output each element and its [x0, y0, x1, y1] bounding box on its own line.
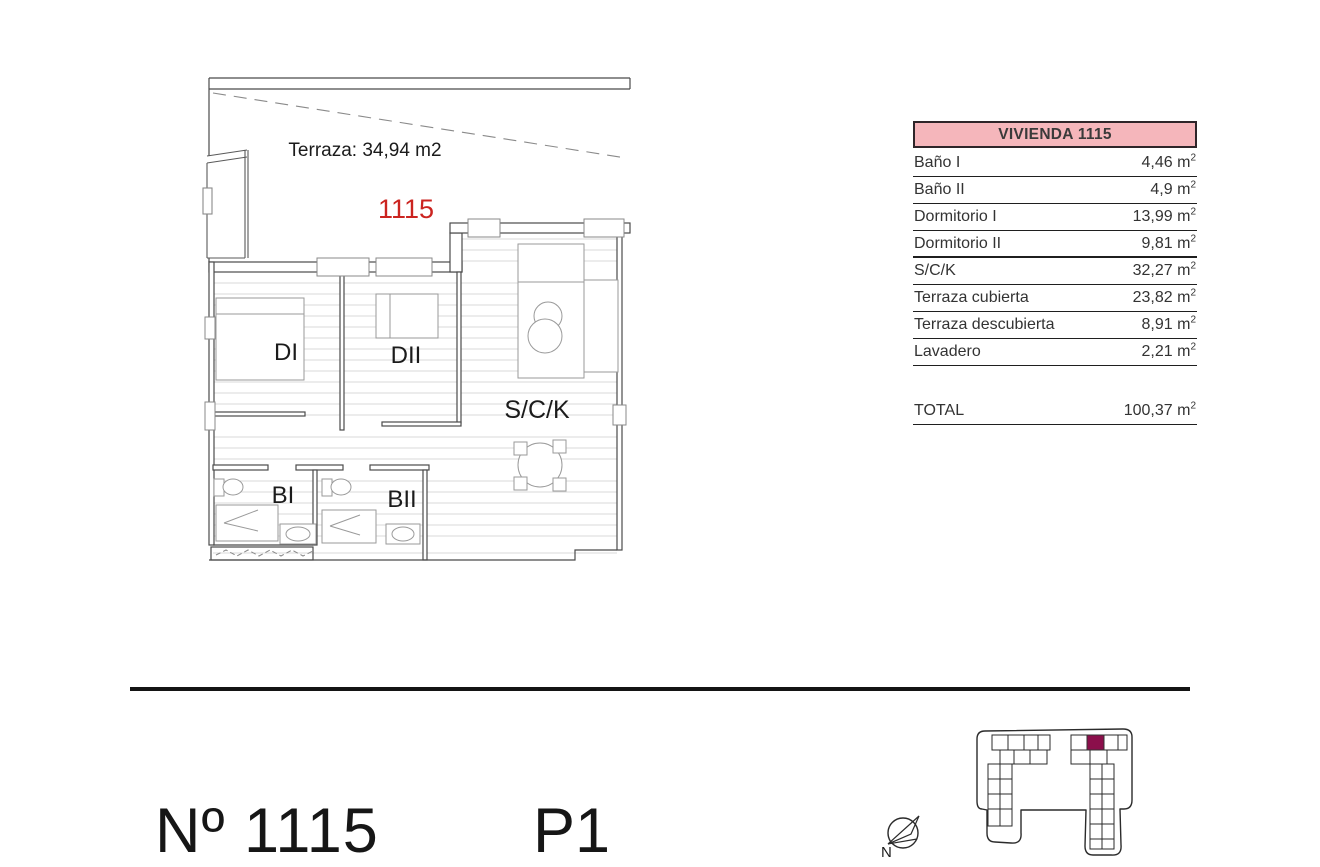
- total-value: 100,37 m2: [1124, 402, 1196, 420]
- table-row: S/C/K 32,27 m2: [913, 258, 1197, 285]
- row-label: Terraza cubierta: [914, 289, 1029, 307]
- row-label: S/C/K: [914, 262, 956, 280]
- row-value: 8,91 m2: [1142, 316, 1196, 334]
- unit-number-label: 1115: [378, 194, 434, 224]
- row-value: 32,27 m2: [1133, 262, 1196, 280]
- floor-plan: Terraza: 34,94 m2 1115 DI DII S/C/K BI B…: [180, 58, 650, 578]
- row-value: 9,81 m2: [1142, 235, 1196, 253]
- area-table: VIVIENDA 1115 Baño I 4,46 m2 Baño II 4,9…: [913, 121, 1197, 425]
- terrace-area-label: Terraza: 34,94 m2: [288, 140, 441, 161]
- row-label: Baño II: [914, 181, 965, 199]
- room-label-bedroom2: DII: [391, 342, 422, 369]
- highlighted-unit-cell: [1087, 735, 1104, 750]
- table-row: Lavadero 2,21 m2: [913, 339, 1197, 366]
- site-plan: N: [875, 713, 1145, 859]
- row-value: 4,46 m2: [1142, 154, 1196, 172]
- row-label: Lavadero: [914, 343, 981, 361]
- unit-grid: [988, 735, 1127, 849]
- north-label: N: [881, 844, 892, 859]
- north-compass-icon: [888, 816, 919, 848]
- row-label: Dormitorio II: [914, 235, 1001, 253]
- site-plan-drawing: N: [875, 713, 1145, 859]
- footer-floor-number: P1: [533, 795, 610, 867]
- room-label-living: S/C/K: [504, 396, 570, 424]
- area-table-rows: Baño I 4,46 m2 Baño II 4,9 m2 Dormitorio…: [913, 150, 1197, 366]
- footer-divider-line: [130, 687, 1190, 691]
- row-value: 13,99 m2: [1133, 208, 1196, 226]
- table-row: Terraza descubierta 8,91 m2: [913, 312, 1197, 339]
- table-row: Terraza cubierta 23,82 m2: [913, 285, 1197, 312]
- table-row: Dormitorio I 13,99 m2: [913, 204, 1197, 231]
- row-label: Dormitorio I: [914, 208, 997, 226]
- row-value: 4,9 m2: [1150, 181, 1196, 199]
- table-total-row: TOTAL 100,37 m2: [913, 398, 1197, 425]
- room-label-bath1: BI: [272, 482, 295, 509]
- area-table-title: VIVIENDA 1115: [913, 121, 1197, 148]
- row-value: 2,21 m2: [1142, 343, 1196, 361]
- footer-unit-number: Nº 1115: [155, 795, 379, 867]
- room-label-bath2: BII: [387, 486, 416, 513]
- row-label: Baño I: [914, 154, 960, 172]
- room-label-bedroom1: DI: [274, 339, 298, 366]
- table-row: Baño I 4,46 m2: [913, 150, 1197, 177]
- row-value: 23,82 m2: [1133, 289, 1196, 307]
- table-row: Baño II 4,9 m2: [913, 177, 1197, 204]
- row-label: Terraza descubierta: [914, 316, 1055, 334]
- table-row: Dormitorio II 9,81 m2: [913, 231, 1197, 258]
- terrace-walls: [209, 78, 630, 262]
- floor-plan-drawing: Terraza: 34,94 m2 1115 DI DII S/C/K BI B…: [180, 58, 650, 578]
- left-bay-wall: [203, 150, 248, 258]
- total-label: TOTAL: [914, 402, 964, 420]
